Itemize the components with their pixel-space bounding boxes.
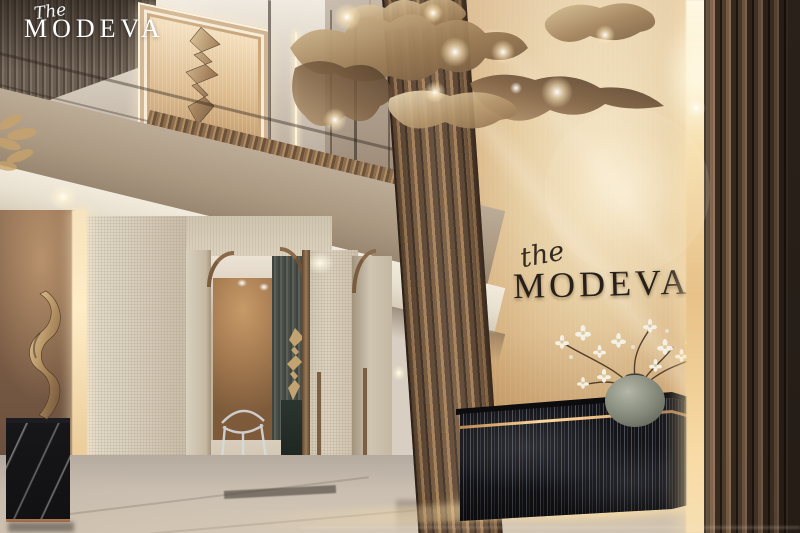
plant-leaves [0,104,48,176]
plinth-floor-reflection [8,522,74,532]
lens-flare-ring [545,108,710,273]
pier-right [306,250,358,472]
sparkle [510,82,522,94]
corridor-ceiling-light [259,283,269,291]
wall-sconce-glow [392,365,406,381]
logo-wordmark: MODEVA [24,16,165,42]
lobby-rendering: the MODEVA [0,0,800,533]
wall-bronze-trim [317,372,321,468]
corridor-ceiling-light [237,279,247,287]
wall-bronze-trim [363,368,367,466]
arch-jamb-bronze [302,250,310,470]
soffit-downlight [48,184,78,210]
watermark-strip [300,526,800,529]
marble-plinth [6,418,70,522]
sparkle [686,98,706,118]
pier-spotlight [306,252,334,274]
right-edge-panel [788,0,800,533]
gold-ribbon-sculpture [8,288,78,424]
fluted-column-right [704,0,800,533]
